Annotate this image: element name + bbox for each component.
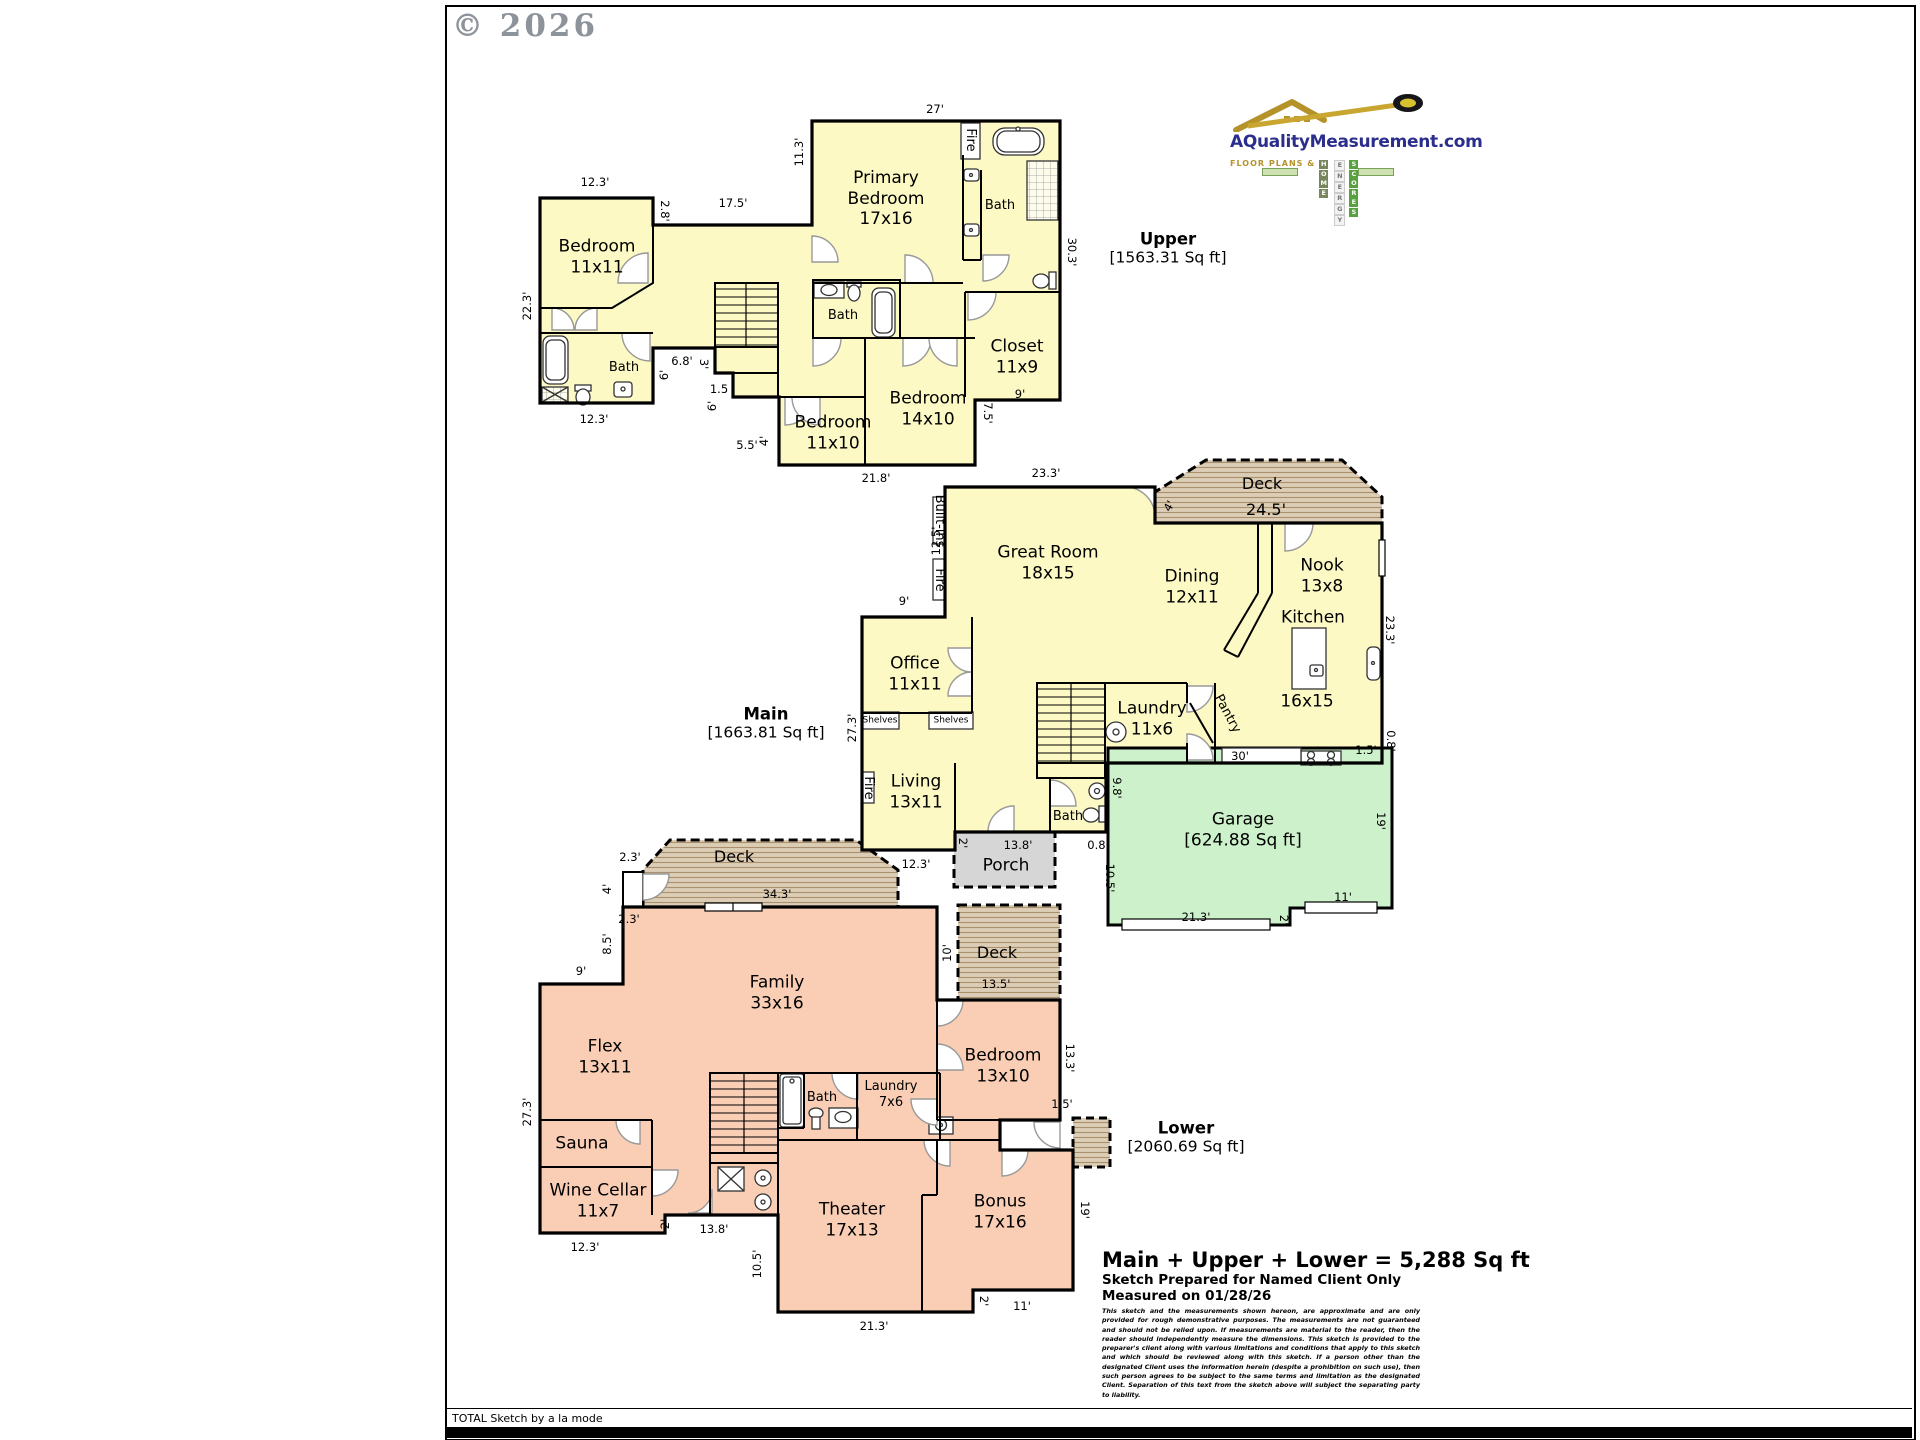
feature-label: Shelves [933, 716, 968, 727]
dimension-label: 21.3' [1182, 910, 1211, 924]
dimension-label: 6.8' [671, 354, 692, 368]
prepared-for: Sketch Prepared for Named Client Only [1102, 1272, 1420, 1288]
dimension-label: 21.8' [862, 471, 891, 485]
dimension-label: 0.8' [1087, 838, 1108, 852]
dimension-label: 12.3' [580, 412, 609, 426]
room-label: Bonus 17x16 [973, 1191, 1026, 1232]
room-label: Great Room 18x15 [997, 542, 1098, 583]
feature-label: Fire [860, 776, 876, 799]
dimension-label: 19' [1374, 812, 1388, 830]
dimension-label: 11.3' [792, 138, 806, 167]
dimension-label: 3' [697, 359, 711, 369]
measured-on: Measured on 01/28/26 [1102, 1288, 1420, 1304]
room-label: 24.5' [1246, 500, 1286, 520]
dimension-label: 13.5' [982, 977, 1011, 991]
dimension-label: 2.3' [618, 912, 639, 926]
room-label: Office 11x11 [888, 653, 941, 694]
disclaimer-text: This sketch and the measurements shown h… [1102, 1307, 1420, 1400]
dimension-label: 6' [657, 370, 671, 380]
dimension-label: 9' [1015, 387, 1025, 401]
dimension-label: 27' [926, 102, 944, 116]
feature-label: Bath [828, 308, 858, 324]
dimension-label: 2' [956, 838, 970, 848]
dimension-label: 30' [1231, 749, 1249, 763]
room-label: Flex 13x11 [578, 1036, 631, 1077]
feature-label: Pantry [1210, 692, 1244, 736]
dimension-label: 9' [899, 594, 909, 608]
dimension-label: 27.3' [845, 714, 859, 743]
feature-label: Fire [931, 568, 947, 591]
room-label: Bedroom 11x11 [559, 236, 636, 277]
dimension-label: 10.5' [750, 1250, 764, 1279]
room-label: Living 13x11 [889, 771, 942, 812]
feature-label: Laundry 7x6 [865, 1079, 918, 1111]
dimension-label: 1.5 [710, 382, 728, 396]
lower-floor-area-text: [2060.69 Sq ft] [1128, 1138, 1245, 1156]
dimension-label: 22.3' [520, 292, 534, 321]
total-sqft: Main + Upper + Lower = 5,288 Sq ft [1102, 1248, 1420, 1272]
room-label: Wine Cellar 11x7 [550, 1180, 647, 1221]
room-label: Kitchen [1281, 608, 1345, 629]
dimension-label: 1.5' [1355, 743, 1376, 757]
main-floor-area-text: [1663.81 Sq ft] [708, 724, 825, 742]
main-floor-header: Main [1663.81 Sq ft] [708, 705, 825, 742]
dimension-label: 4' [757, 436, 771, 446]
feature-label: Fire [962, 128, 978, 151]
room-label: Garage [624.88 Sq ft] [1184, 809, 1302, 850]
footer-divider [445, 1408, 1912, 1409]
dimension-label: 11' [1013, 1299, 1031, 1313]
room-label: Bedroom 13x10 [965, 1045, 1042, 1086]
dimension-label: 19' [1078, 1201, 1092, 1219]
dimension-label: 6' [705, 401, 719, 411]
room-label: Bedroom 11x10 [795, 412, 872, 453]
dimension-label: 5.5' [736, 438, 757, 452]
dimension-label: 2.3' [619, 850, 640, 864]
room-label: Dining 12x11 [1165, 566, 1220, 607]
summary-block: Main + Upper + Lower = 5,288 Sq ft Sketc… [1102, 1248, 1420, 1400]
dimension-label: 2.8' [658, 200, 672, 221]
dimension-label: 17.5' [719, 196, 748, 210]
dimension-label: 2' [977, 1296, 991, 1306]
dimension-label: 7.5' [981, 402, 995, 423]
room-label: 16x15 [1280, 692, 1333, 713]
room-label: Deck [977, 943, 1017, 963]
dimension-label: 10.5' [1103, 864, 1117, 893]
lower-floor-header: Lower [2060.69 Sq ft] [1128, 1119, 1245, 1156]
dimension-label: 12.3' [571, 1240, 600, 1254]
feature-label: Bath [807, 1090, 837, 1106]
room-label: Closet 11x9 [991, 336, 1044, 377]
dimension-label: 2' [1277, 915, 1291, 925]
room-label: Deck [714, 847, 754, 867]
dimension-label: 23.3' [1383, 616, 1397, 645]
dimension-label: 12.3' [581, 175, 610, 189]
lower-floor-name: Lower [1128, 1119, 1245, 1138]
dimension-label: 27.3' [520, 1098, 534, 1127]
room-label: Porch [983, 856, 1030, 877]
room-label: Family 33x16 [750, 972, 805, 1013]
floorplan-page: © 2026 AQualityMeasurement.com Floor Pla… [0, 0, 1920, 1440]
dimension-label: 4' [1160, 498, 1177, 514]
dimension-label: 12.3' [902, 857, 931, 871]
feature-label: Shelves [862, 716, 897, 727]
dimension-label: 10' [940, 944, 954, 962]
room-label: Deck [1242, 474, 1282, 494]
dimension-label: 23.3' [1032, 466, 1061, 480]
footer-bar [445, 1427, 1912, 1438]
room-label: Sauna [555, 1134, 608, 1155]
dimension-label: 4' [600, 884, 614, 894]
feature-label: Bath [1053, 809, 1083, 825]
dimension-label: 34.3' [763, 887, 792, 901]
dimension-label: 9.8' [1110, 777, 1124, 798]
upper-floor-area-text: [1563.31 Sq ft] [1110, 249, 1227, 267]
dimension-label: 21.3' [860, 1319, 889, 1333]
dimension-label: 1.5' [1051, 1097, 1072, 1111]
dimension-label: 12.5' [929, 527, 943, 556]
dimension-label: 2' [658, 1219, 672, 1229]
dimension-label: 8.5' [600, 933, 614, 954]
dimension-label: 13.8' [1004, 838, 1033, 852]
dimension-label: 13.8' [700, 1222, 729, 1236]
footer-credit: TOTAL Sketch by a la mode [452, 1412, 603, 1425]
room-label: Bedroom 14x10 [890, 388, 967, 429]
feature-label: Bath [985, 198, 1015, 214]
dimension-label: 13.3' [1063, 1044, 1077, 1073]
dimension-label: 9' [576, 964, 586, 978]
room-label: Laundry 11x6 [1117, 698, 1186, 739]
feature-label: Bath [609, 360, 639, 376]
room-label: Nook 13x8 [1300, 555, 1343, 596]
upper-floor-name: Upper [1110, 230, 1227, 249]
room-label: Primary Bedroom 17x16 [848, 168, 925, 230]
room-label: Theater 17x13 [819, 1199, 885, 1240]
dimension-label: 11' [1334, 890, 1352, 904]
upper-floor-header: Upper [1563.31 Sq ft] [1110, 230, 1227, 267]
dimension-label: 0.8' [1384, 730, 1398, 751]
labels-layer: Bedroom 11x11Primary Bedroom 17x16Closet… [0, 0, 1920, 1440]
dimension-label: 30.3' [1065, 238, 1079, 267]
main-floor-name: Main [708, 705, 825, 724]
